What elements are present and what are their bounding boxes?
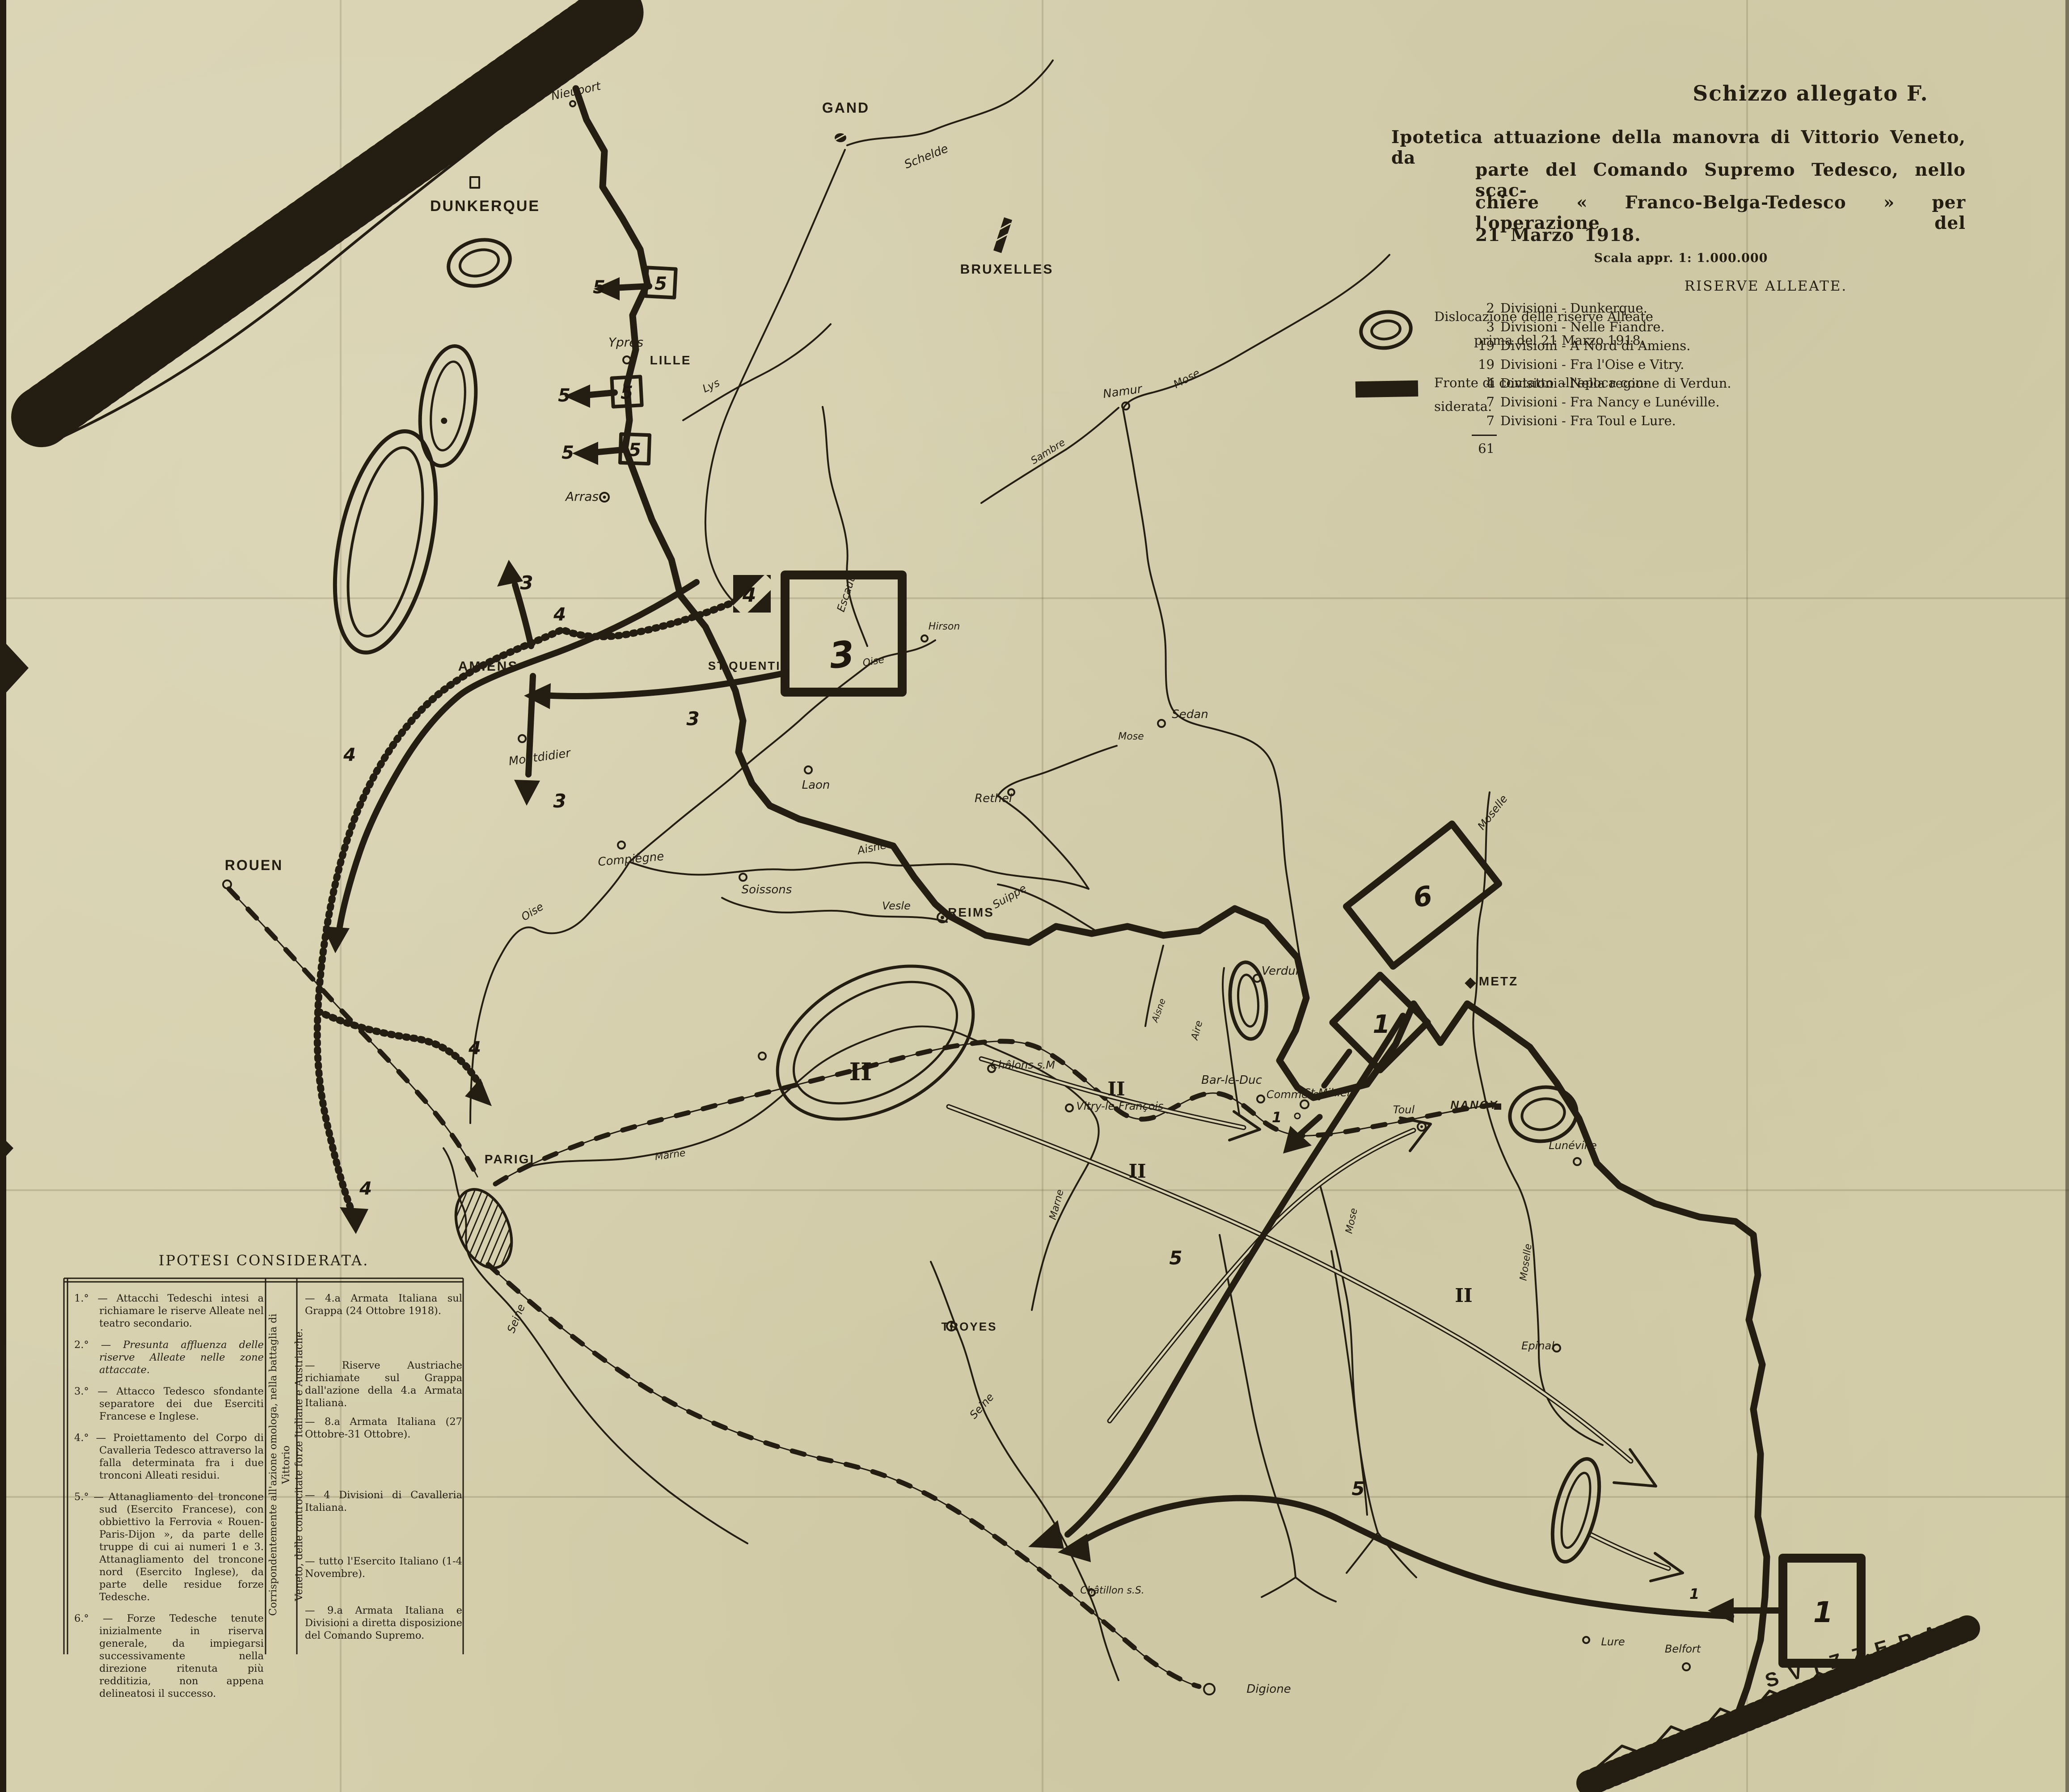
num-5-southwest: 5 bbox=[1169, 1247, 1182, 1269]
label-ypres: Ypres bbox=[608, 335, 643, 350]
river-vesle bbox=[722, 898, 947, 922]
num-3-amiens: 3 bbox=[686, 708, 699, 730]
counterpart-item-4: — 4 Divisioni di Cavalleria Italiana. bbox=[305, 1489, 462, 1514]
label-namur: Namur bbox=[1102, 382, 1144, 401]
map-canvas: DUNKERQUE Nieuport GAND Ypres LILLE BRUX… bbox=[0, 0, 2069, 1792]
num-3-armybox: 3 bbox=[828, 633, 857, 676]
reserve-text: Divisioni - A Nord di Amiens. bbox=[1500, 338, 1690, 353]
hypothesis-number: 1.° bbox=[74, 1293, 89, 1304]
counterpart-item-5: — tutto l'Esercito Italiano (1-4 Novembr… bbox=[305, 1555, 462, 1580]
num-1-belfort: 1 bbox=[1689, 1585, 1699, 1602]
reserve-row: 2Divisioni - Dunkerque. bbox=[1460, 299, 1731, 317]
label-belfort: Belfort bbox=[1665, 1643, 1702, 1655]
label-marne-paris: Marne bbox=[654, 1147, 686, 1162]
label-toul: Toul bbox=[1393, 1103, 1415, 1116]
legend-front-bar-icon bbox=[1355, 380, 1419, 397]
reserve-moves-II bbox=[949, 1059, 1683, 1581]
reserve-row: 19Divisioni - A Nord di Amiens. bbox=[1460, 336, 1731, 355]
label-seine-paris: Seine bbox=[505, 1302, 528, 1335]
hypothesis-item-4: 4.° — Proiettamento del Corpo di Cavalle… bbox=[74, 1432, 264, 1482]
cavalry-arrowhead-paris bbox=[465, 1078, 492, 1106]
num-1-armybox: 1 bbox=[1373, 1010, 1390, 1039]
label-amiens: AMIENS bbox=[458, 659, 519, 674]
label-oise-south: Oise bbox=[519, 900, 546, 923]
label-commercy: Commercy bbox=[1267, 1088, 1325, 1101]
scale-note: Scala appr. 1: 1.000.000 bbox=[1547, 251, 1815, 265]
hypothesis-item-5: 5.° — Attanagliamento del troncone sud (… bbox=[74, 1491, 264, 1603]
river-meuse-north bbox=[1123, 255, 1389, 995]
rom-ii-vitry: II bbox=[1128, 1160, 1146, 1182]
reserve-row: 7Divisioni - Fra Nancy e Lunéville. bbox=[1460, 393, 1731, 411]
reserves-list: 2Divisioni - Dunkerque. 3Divisioni - Nel… bbox=[1460, 299, 1731, 430]
reserve-count: 7 bbox=[1460, 393, 1495, 411]
cavalry-arrowhead-south bbox=[340, 1207, 368, 1234]
river-aube bbox=[1220, 1235, 1336, 1602]
reserve-count: 19 bbox=[1460, 336, 1495, 355]
label-dunkerque: DUNKERQUE bbox=[430, 198, 540, 215]
num-5-flanders-1: 5 bbox=[593, 277, 605, 298]
hypothesis-text: — Proiettamento del Corpo di Cavalleria … bbox=[96, 1432, 264, 1481]
label-seine-troyes: Seine bbox=[967, 1391, 996, 1421]
num-3-south: 3 bbox=[553, 790, 566, 812]
label-aisne-source: Aisne bbox=[1149, 997, 1168, 1024]
num-4-c: 4 bbox=[359, 1179, 372, 1199]
river-aisne-upper bbox=[998, 746, 1117, 889]
label-moselle-south: Moselle bbox=[1518, 1243, 1534, 1281]
reserve-text: Divisioni - Dunkerque. bbox=[1500, 300, 1647, 316]
hypothesis-number: 6.° bbox=[74, 1613, 89, 1624]
legend-reserve-ellipse-icon bbox=[1359, 309, 1413, 351]
reserve-row: 7Divisioni - Fra Toul e Lure. bbox=[1460, 411, 1731, 430]
sheet-tag: Schizzo allegato F. bbox=[1609, 81, 2012, 106]
counterpart-item-3: — 8.a Armata Italiana (27 Ottobre-31 Ott… bbox=[305, 1416, 462, 1441]
num-1-stmihiel: 1 bbox=[1272, 1109, 1282, 1126]
hypotheses-middle-rotated: Corrispondentemente all'azione omologa, … bbox=[267, 1295, 295, 1635]
reserve-text: Divisioni - Nelle Fiandre. bbox=[1500, 319, 1665, 334]
label-chatillon: Châtillon s.S. bbox=[1080, 1585, 1144, 1596]
coast-hatching bbox=[38, 13, 635, 445]
river-meuse-south bbox=[1320, 1184, 1367, 1515]
reserve-text: Divisioni - Fra l'Oise e Vitry. bbox=[1500, 357, 1684, 372]
middle-line-2: Veneto, delle controcitate forze Italian… bbox=[293, 1295, 306, 1635]
legend-symbols bbox=[1355, 309, 1419, 398]
river-oise bbox=[470, 640, 935, 1123]
reserves-sum-rule bbox=[1472, 435, 1497, 436]
num-5-flanders-3: 5 bbox=[562, 443, 574, 463]
reserve-count: 7 bbox=[1460, 411, 1495, 430]
hypothesis-item-6: 6.° — Forze Tedesche tenute inizialmente… bbox=[74, 1612, 264, 1700]
num-4-b: 4 bbox=[343, 745, 356, 765]
label-gand: GAND bbox=[822, 100, 870, 116]
reserve-count: 2 bbox=[1460, 299, 1495, 317]
title-line-4: 21 Marzo 1918. bbox=[1475, 225, 1744, 245]
reserve-count: 4 bbox=[1460, 374, 1495, 393]
label-vitry: Vitry-le-François bbox=[1076, 1100, 1163, 1112]
num-3-north: 3 bbox=[520, 572, 533, 594]
counterpart-item-6: — 9.a Armata Italiana e Divisioni a dire… bbox=[305, 1604, 462, 1642]
label-sedan: Sedan bbox=[1172, 708, 1208, 721]
label-oise-box: Oise bbox=[862, 654, 885, 669]
hypothesis-text: — Attacco Tedesco sfondante separatore d… bbox=[97, 1386, 264, 1422]
reserve-row: 19Divisioni - Fra l'Oise e Vitry. bbox=[1460, 355, 1731, 374]
reserve-epinal bbox=[1544, 1454, 1608, 1567]
num-4-a: 4 bbox=[553, 604, 566, 625]
label-epinal: Epinal bbox=[1521, 1340, 1554, 1352]
label-verdun: Verdun bbox=[1262, 964, 1303, 978]
counterpart-item-1: — 4.a Armata Italiana sul Grappa (24 Ott… bbox=[305, 1292, 462, 1317]
num-5-box2: 5 bbox=[621, 383, 633, 403]
reserve-count: 3 bbox=[1460, 317, 1495, 336]
num-4-d: 4 bbox=[468, 1038, 481, 1059]
label-soissons: Soissons bbox=[742, 883, 792, 896]
num-5-flanders-2: 5 bbox=[558, 385, 570, 406]
hypothesis-number: 2.° bbox=[74, 1339, 89, 1351]
reserve-row: 3Divisioni - Nelle Fiandre. bbox=[1460, 317, 1731, 336]
label-aire: Aire bbox=[1189, 1019, 1205, 1042]
reserve-amiens bbox=[317, 422, 453, 661]
hypothesis-text: — Forze Tedesche tenute inizialmente in … bbox=[99, 1613, 264, 1699]
river-schelde bbox=[847, 60, 1053, 145]
reserves-title: RISERVE ALLEATE. bbox=[1609, 278, 1922, 294]
label-schelde: Schelde bbox=[903, 142, 950, 171]
label-arras: Arras bbox=[565, 489, 599, 504]
label-montdidier: Montdidier bbox=[508, 746, 572, 768]
label-luneville: Lunéville bbox=[1549, 1139, 1597, 1152]
paris-city-mark bbox=[445, 1181, 523, 1276]
label-st-quentin: ST.QUENTIN bbox=[708, 659, 791, 672]
num-5-belfort: 5 bbox=[1351, 1478, 1364, 1500]
hypothesis-text: — Attanagliamento del troncone sud (Eser… bbox=[93, 1491, 264, 1603]
hypotheses-title: IPOTESI CONSIDERATA. bbox=[107, 1252, 420, 1269]
label-troyes: TROYES bbox=[942, 1320, 997, 1333]
num-6-armybox: 6 bbox=[1411, 880, 1435, 914]
rom-ii-epinal: II bbox=[1455, 1285, 1472, 1306]
hypothesis-item-3: 3.° — Attacco Tedesco sfondante separato… bbox=[74, 1385, 264, 1423]
label-rethel: Rethel bbox=[975, 792, 1013, 805]
map-sheet: { "title": { "tag": "Schizzo allegato F.… bbox=[0, 0, 2069, 1792]
num-5-box1: 5 bbox=[654, 274, 667, 294]
label-digione: Digione bbox=[1246, 1682, 1291, 1696]
num-4-flag: 4 bbox=[742, 584, 756, 607]
reserve-count: 19 bbox=[1460, 355, 1495, 374]
operation-numbers: 5 5 5 5 5 5 3 3 3 3 4 4 4 4 4 6 1 1 1 1 … bbox=[343, 274, 1833, 1629]
label-moselle-north: Moselle bbox=[1475, 793, 1510, 833]
label-mose-south: Mose bbox=[1343, 1207, 1360, 1234]
rivers bbox=[443, 60, 1603, 1680]
reserve-row: 4Divisioni - Nella regione di Verdun. bbox=[1460, 374, 1731, 393]
hypothesis-item-2: 2.° — Presunta affluenza delle riserve A… bbox=[74, 1339, 264, 1376]
counterpart-item-2: — Riserve Austriache richiamate sul Grap… bbox=[305, 1359, 462, 1409]
arrow-3-amiens bbox=[543, 673, 786, 696]
attack-arrows bbox=[323, 277, 1782, 1623]
label-vesle: Vesle bbox=[882, 900, 911, 912]
label-bar-le-duc: Bar-le-Duc bbox=[1201, 1074, 1262, 1087]
reserves-total: 61 bbox=[1460, 439, 1495, 458]
hypotheses-left-column: 1.° — Attacchi Tedeschi intesi a richiam… bbox=[74, 1292, 264, 1709]
num-1-belfort-box: 1 bbox=[1813, 1596, 1833, 1629]
label-mose-namur: Mose bbox=[1171, 367, 1202, 391]
hypothesis-item-1: 1.° — Attacchi Tedeschi intesi a richiam… bbox=[74, 1292, 264, 1330]
label-rouen: ROUEN bbox=[225, 857, 283, 873]
label-aisne: Aisne bbox=[855, 839, 887, 857]
river-lys bbox=[683, 324, 831, 420]
label-bruxelles: BRUXELLES bbox=[960, 262, 1054, 277]
river-marne-upper bbox=[1331, 1251, 1416, 1577]
rom-ii-ellipse: II bbox=[849, 1057, 872, 1086]
label-compiegne: Compiègne bbox=[597, 850, 664, 869]
reserve-text: Divisioni - Fra Nancy e Lunéville. bbox=[1500, 394, 1719, 410]
reserve-text: Divisioni - Nella regione di Verdun. bbox=[1500, 376, 1731, 391]
river-schelde-upper bbox=[705, 150, 845, 601]
label-marne-south: Marne bbox=[1047, 1188, 1066, 1221]
hypothesis-number: 3.° bbox=[74, 1386, 89, 1397]
label-lys: Lys bbox=[701, 376, 722, 395]
label-mose-sedan: Mose bbox=[1118, 731, 1144, 742]
hypothesis-number: 5.° bbox=[74, 1491, 89, 1503]
hypothesis-text: — Attacchi Tedeschi intesi a richiamare … bbox=[97, 1293, 264, 1329]
rom-ii-chalons: II bbox=[1107, 1078, 1125, 1100]
reserve-chateau-thierry bbox=[752, 935, 999, 1150]
label-lure: Lure bbox=[1601, 1636, 1625, 1648]
label-laon: Laon bbox=[802, 778, 830, 792]
reserve-dunkerque bbox=[443, 233, 515, 293]
reserve-text: Divisioni - Fra Toul e Lure. bbox=[1500, 413, 1676, 428]
bruxelles-mark bbox=[993, 217, 1012, 253]
hypothesis-number: 4.° bbox=[74, 1432, 89, 1444]
middle-line-1: Corrispondentemente all'azione omologa, … bbox=[267, 1295, 293, 1635]
label-metz: METZ bbox=[1479, 974, 1518, 988]
num-5-box3: 5 bbox=[629, 440, 641, 461]
label-chalons: Châlons s.M bbox=[991, 1059, 1056, 1071]
label-parigi: PARIGI bbox=[485, 1152, 535, 1166]
dijon-terminus bbox=[1204, 1684, 1215, 1695]
reserve-luneville bbox=[1506, 1082, 1581, 1146]
reserve-flanders bbox=[413, 342, 483, 469]
arrow-3-north bbox=[515, 585, 531, 646]
army1-front-link bbox=[1324, 1052, 1349, 1086]
hypothesis-text: — Presunta affluenza delle riserve Allea… bbox=[99, 1339, 264, 1376]
label-lille: LILLE bbox=[650, 353, 692, 367]
label-hirson: Hirson bbox=[929, 621, 960, 632]
label-nancy: NANCY bbox=[1450, 1098, 1498, 1112]
label-reims: REIMS bbox=[948, 905, 994, 919]
label-escaut: Escaut bbox=[835, 575, 858, 613]
